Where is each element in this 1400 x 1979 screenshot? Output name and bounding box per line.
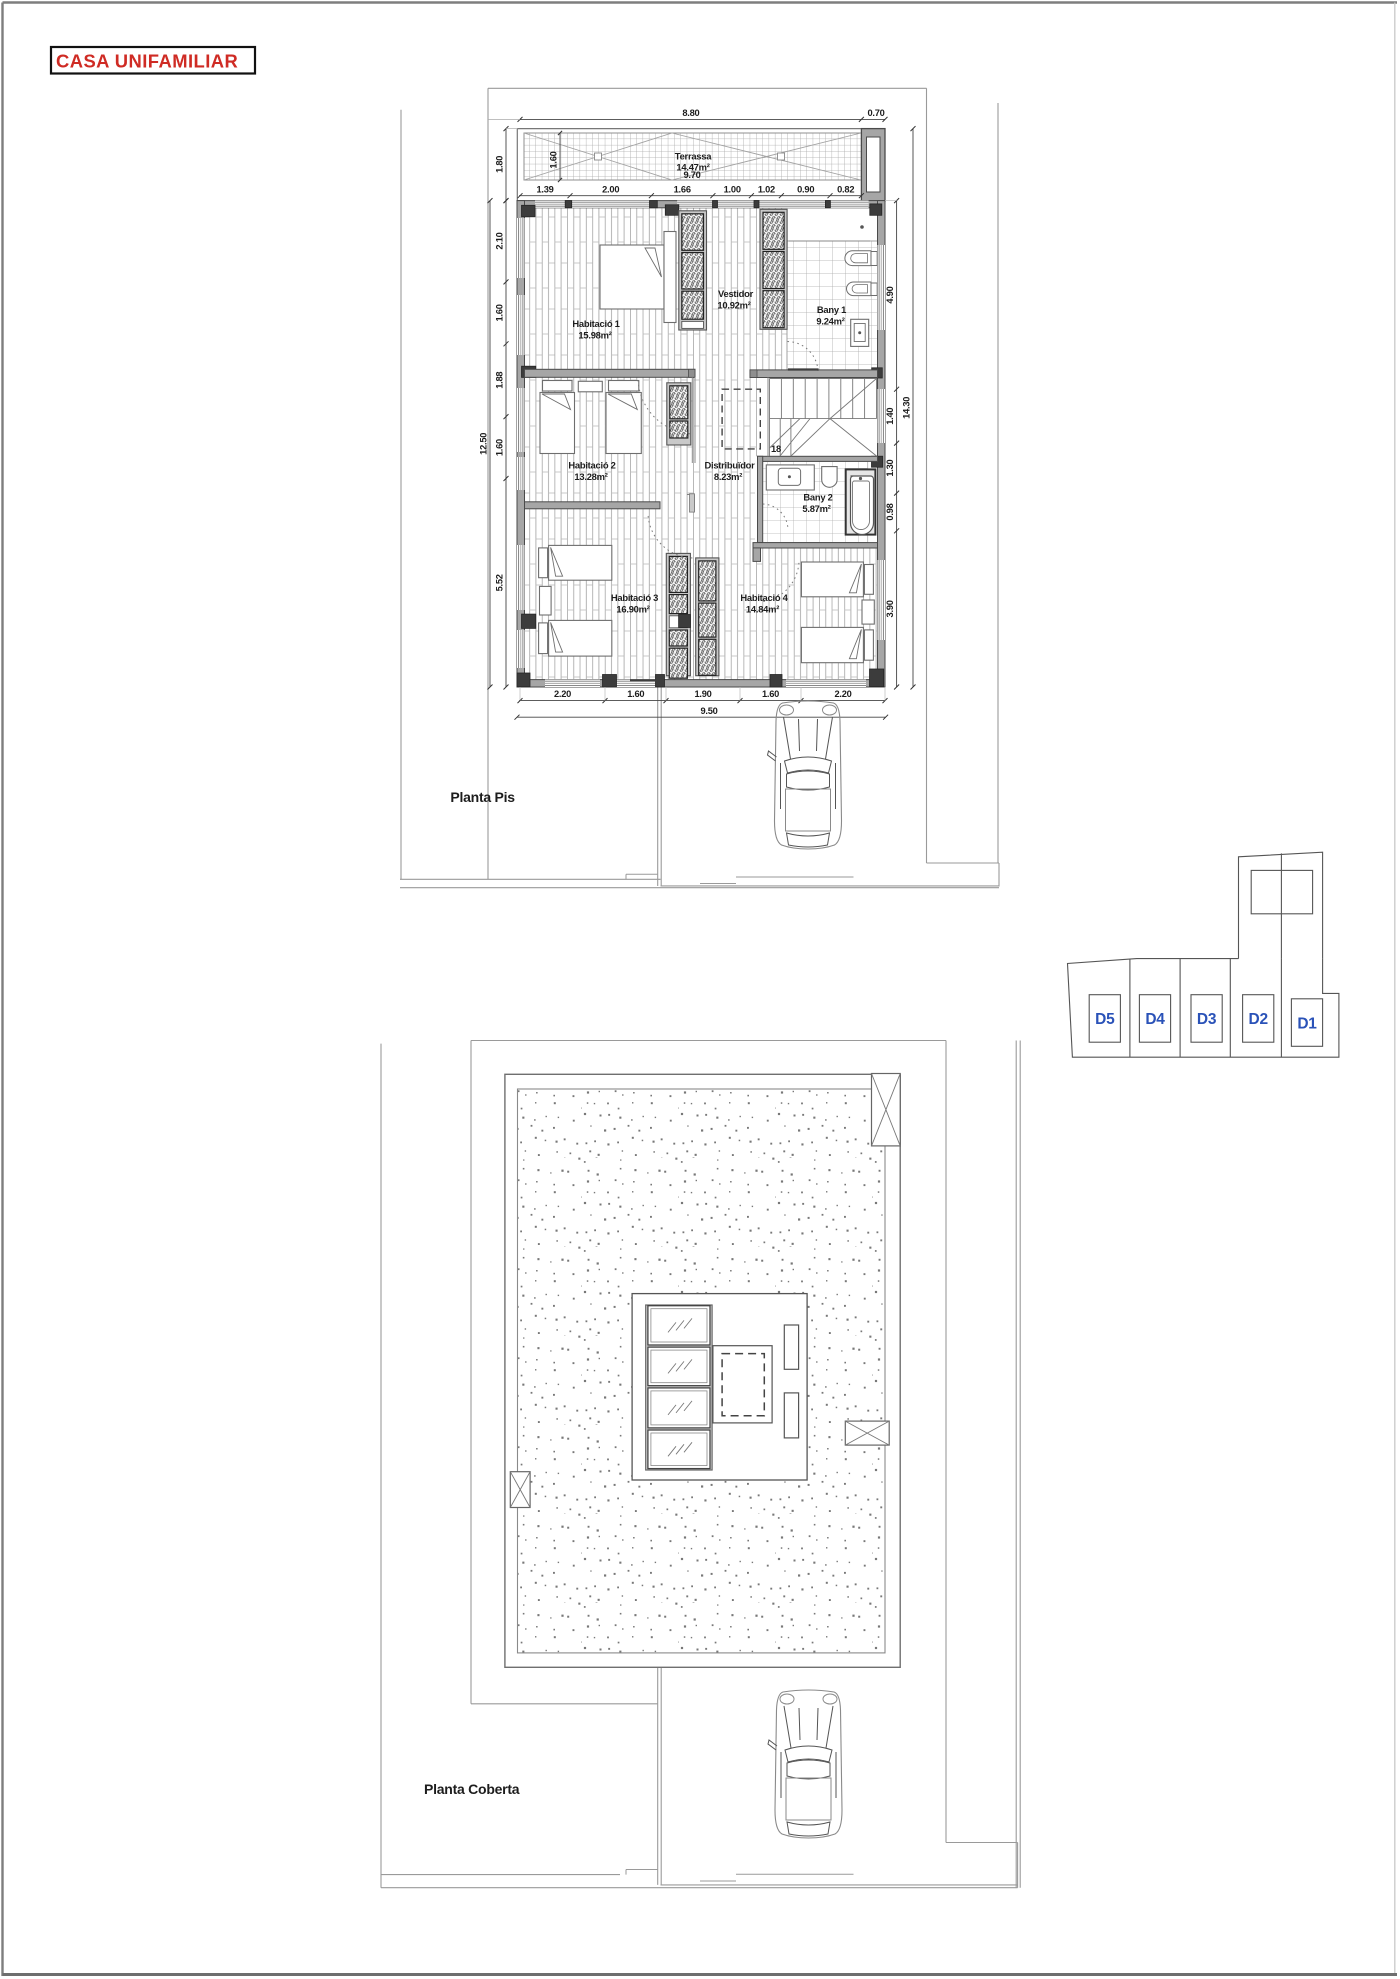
svg-text:1.60: 1.60 [627, 689, 644, 699]
svg-text:0.82: 0.82 [837, 184, 854, 194]
svg-text:1.00: 1.00 [724, 184, 741, 194]
svg-text:12.50: 12.50 [479, 433, 489, 455]
svg-text:Habitació 1: Habitació 1 [572, 318, 619, 329]
svg-text:CASA UNIFAMILIAR: CASA UNIFAMILIAR [56, 51, 238, 72]
svg-text:Planta Pis: Planta Pis [450, 789, 515, 805]
svg-text:1.60: 1.60 [495, 439, 505, 456]
svg-text:1.90: 1.90 [694, 689, 711, 699]
svg-text:1.88: 1.88 [495, 372, 505, 389]
svg-text:16.90m²: 16.90m² [616, 604, 649, 615]
svg-text:18: 18 [771, 443, 781, 454]
svg-text:8.80: 8.80 [682, 108, 699, 118]
svg-text:1.30: 1.30 [885, 459, 895, 476]
svg-text:15.98m²: 15.98m² [578, 330, 611, 341]
svg-text:1.39: 1.39 [536, 184, 553, 194]
svg-text:2.10: 2.10 [495, 232, 505, 249]
svg-text:Terrassa: Terrassa [675, 151, 712, 162]
svg-text:1.40: 1.40 [885, 408, 895, 425]
svg-text:8.23m²: 8.23m² [714, 471, 742, 482]
svg-text:D2: D2 [1249, 1011, 1268, 1028]
svg-text:1.80: 1.80 [495, 156, 505, 173]
svg-text:Bany 1: Bany 1 [817, 304, 846, 315]
svg-text:14.30: 14.30 [902, 397, 912, 419]
svg-text:13.28m²: 13.28m² [574, 471, 607, 482]
svg-text:4.90: 4.90 [885, 286, 895, 303]
svg-text:2.20: 2.20 [834, 689, 851, 699]
svg-text:2.00: 2.00 [602, 184, 619, 194]
svg-text:9.50: 9.50 [700, 706, 717, 716]
svg-text:5.52: 5.52 [495, 574, 505, 591]
svg-text:D3: D3 [1197, 1011, 1217, 1028]
svg-text:10.92m²: 10.92m² [717, 300, 750, 311]
svg-text:0.98: 0.98 [885, 503, 895, 520]
svg-text:1.02: 1.02 [758, 184, 775, 194]
svg-text:D1: D1 [1297, 1015, 1317, 1032]
svg-text:Planta Coberta: Planta Coberta [424, 1781, 520, 1797]
svg-text:1.60: 1.60 [549, 151, 559, 168]
svg-text:Habitació 4: Habitació 4 [740, 592, 788, 603]
svg-text:1.60: 1.60 [762, 689, 779, 699]
svg-text:0.90: 0.90 [797, 184, 814, 194]
svg-text:Habitació 2: Habitació 2 [568, 460, 615, 471]
svg-text:1.60: 1.60 [495, 304, 505, 321]
svg-text:Bany 2: Bany 2 [803, 492, 832, 503]
svg-text:D4: D4 [1145, 1011, 1165, 1028]
svg-text:9.70: 9.70 [683, 170, 700, 180]
svg-text:Distribuïdor: Distribuïdor [704, 460, 755, 471]
svg-text:2.20: 2.20 [554, 689, 571, 699]
svg-text:Vestidor: Vestidor [718, 288, 754, 299]
svg-text:14.84m²: 14.84m² [746, 604, 779, 615]
svg-text:Habitació 3: Habitació 3 [611, 592, 658, 603]
svg-text:9.24m²: 9.24m² [816, 316, 844, 327]
svg-text:1.66: 1.66 [674, 184, 691, 194]
svg-text:5.87m²: 5.87m² [802, 503, 830, 514]
svg-text:0.70: 0.70 [867, 108, 884, 118]
svg-text:D5: D5 [1095, 1011, 1115, 1028]
svg-text:3.90: 3.90 [885, 600, 895, 617]
